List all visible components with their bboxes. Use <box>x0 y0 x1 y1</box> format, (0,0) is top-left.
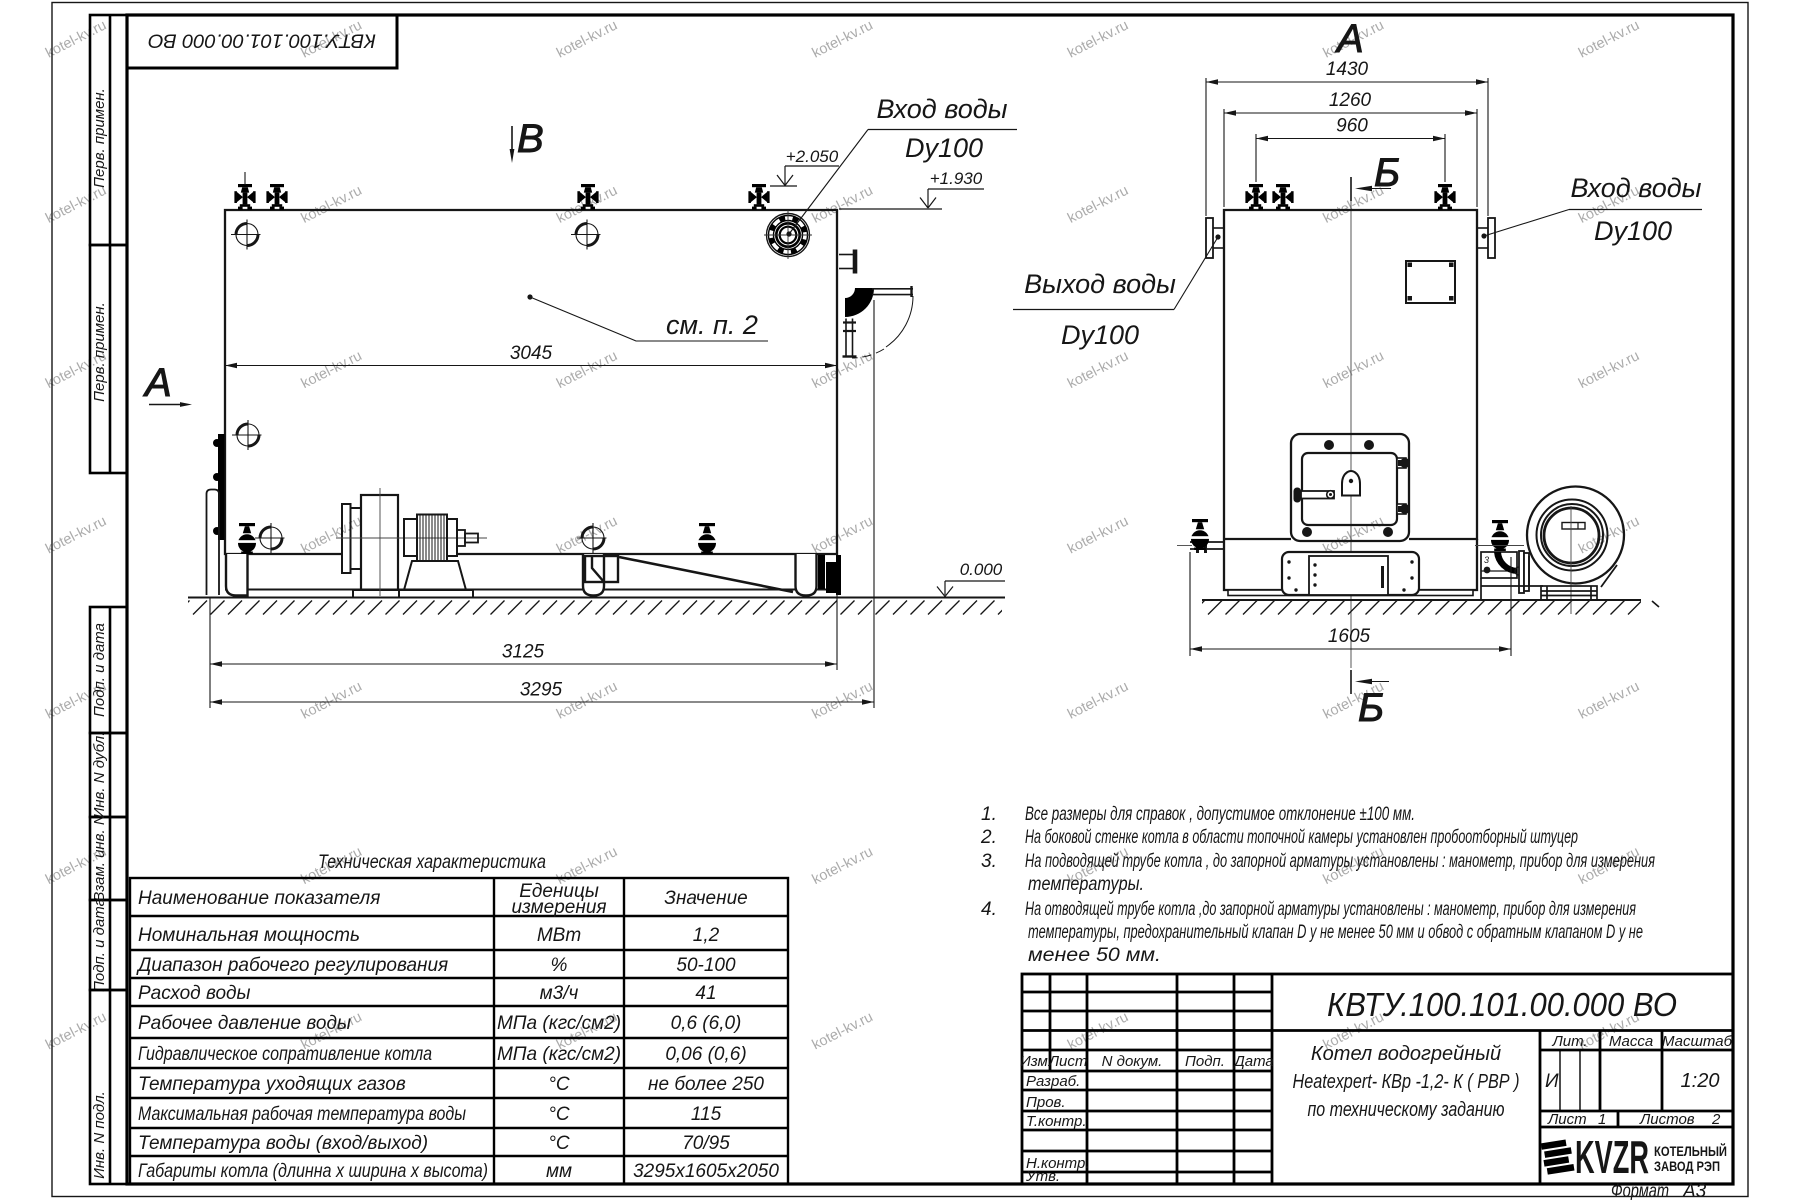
svg-text:На отводящей трубе котла ,до з: На отводящей трубе котла ,до запорной ар… <box>1025 899 1636 920</box>
svg-text:%: % <box>551 955 568 976</box>
svg-text:4.: 4. <box>981 899 997 920</box>
svg-text:1.: 1. <box>981 804 997 825</box>
svg-text:°С: °С <box>548 1074 570 1095</box>
svg-text:3295: 3295 <box>520 680 563 701</box>
svg-text:3: 3 <box>1484 555 1489 565</box>
svg-text:температуры, предохранительны: температуры, предохранительный клапан D … <box>1028 922 1643 943</box>
svg-text:В: В <box>517 117 544 161</box>
svg-text:0,6 (6,0): 0,6 (6,0) <box>671 1013 742 1034</box>
svg-text:Значение: Значение <box>664 888 747 909</box>
svg-text:Инв. N подл.: Инв. N подл. <box>91 1091 108 1179</box>
svg-text:kotel-kv.ru: kotel-kv.ru <box>1576 348 1642 392</box>
svg-text:Лит.: Лит. <box>1551 1033 1587 1050</box>
svg-text:kotel-kv.ru: kotel-kv.ru <box>1065 513 1131 557</box>
svg-text:МПа (кгс/см2): МПа (кгс/см2) <box>497 1044 621 1065</box>
svg-text:МВт: МВт <box>537 925 581 946</box>
svg-text:м3/ч: м3/ч <box>540 983 579 1004</box>
svg-text:960: 960 <box>1336 116 1368 137</box>
svg-text:Перв. примен.: Перв. примен. <box>91 302 108 402</box>
svg-text:Наименование показателя: Наименование показателя <box>138 888 380 909</box>
svg-text:А3: А3 <box>1682 1181 1707 1200</box>
svg-text:kotel-kv.ru: kotel-kv.ru <box>810 844 876 888</box>
svg-text:Формат: Формат <box>1611 1181 1669 1200</box>
svg-text:А: А <box>143 361 172 405</box>
svg-text:kotel-kv.ru: kotel-kv.ru <box>1065 679 1131 723</box>
svg-text:kotel-kv.ru: kotel-kv.ru <box>554 348 620 392</box>
svg-text:3295х1605х2050: 3295х1605х2050 <box>633 1161 779 1182</box>
svg-text:Рабочее давление воды: Рабочее давление воды <box>138 1013 351 1034</box>
svg-text:kotel-kv.ru: kotel-kv.ru <box>299 183 365 227</box>
svg-text:1430: 1430 <box>1326 59 1369 80</box>
svg-text:И: И <box>1545 1071 1559 1092</box>
svg-text:0.000: 0.000 <box>960 560 1003 579</box>
svg-text:kotel-kv.ru: kotel-kv.ru <box>1065 348 1131 392</box>
svg-text:Техническая характеристика: Техническая характеристика <box>318 852 546 873</box>
svg-text:kotel-kv.ru: kotel-kv.ru <box>554 17 620 61</box>
svg-text:менее 50 мм.: менее 50 мм. <box>1028 945 1161 966</box>
svg-text:Изм.: Изм. <box>1020 1053 1052 1070</box>
svg-text:Температура уходящих газов: Температура уходящих газов <box>138 1074 406 1095</box>
svg-text:2.: 2. <box>980 827 997 848</box>
svg-text:Б: Б <box>1358 686 1384 730</box>
svg-text:Лист: Лист <box>1048 1053 1088 1070</box>
svg-text:Инв. N дубл.: Инв. N дубл. <box>91 732 108 819</box>
svg-text:kotel-kv.ru: kotel-kv.ru <box>554 513 620 557</box>
svg-text:Диапазон рабочего регулировани: Диапазон рабочего регулирования <box>136 955 448 976</box>
svg-text:см. п. 2: см. п. 2 <box>666 310 758 340</box>
svg-text:kotel-kv.ru: kotel-kv.ru <box>43 183 109 227</box>
svg-text:kotel-kv.ru: kotel-kv.ru <box>1576 679 1642 723</box>
svg-text:kotel-kv.ru: kotel-kv.ru <box>810 183 876 227</box>
svg-text:Гидравлическое сопративление к: Гидравлическое сопративление котла <box>138 1044 432 1065</box>
svg-text:На боковой стенке котла в обла: На боковой стенке котла в области топочн… <box>1025 827 1578 848</box>
svg-text:kotel-kv.ru: kotel-kv.ru <box>299 348 365 392</box>
svg-text:Все размеры для справок , допу: Все размеры для справок , допустимое отк… <box>1025 804 1415 825</box>
svg-text:Котел водогрейный: Котел водогрейный <box>1311 1043 1501 1065</box>
svg-text:Перв. примен.: Перв. примен. <box>91 88 108 188</box>
svg-text:измерения: измерения <box>511 897 606 918</box>
svg-text:°С: °С <box>548 1133 570 1154</box>
svg-text:°С: °С <box>548 1104 570 1125</box>
svg-text:Масштаб: Масштаб <box>1662 1033 1733 1050</box>
svg-text:Расход воды: Расход воды <box>138 983 251 1004</box>
svg-text:КОТЕЛЬНЫЙ: КОТЕЛЬНЫЙ <box>1654 1142 1727 1159</box>
svg-text:мм: мм <box>546 1161 572 1182</box>
svg-text:kotel-kv.ru: kotel-kv.ru <box>1321 513 1387 557</box>
svg-text:kotel-kv.ru: kotel-kv.ru <box>554 679 620 723</box>
svg-text:50-100: 50-100 <box>676 955 736 976</box>
svg-text:Лист: Лист <box>1547 1111 1587 1128</box>
svg-text:Подп. и дата: Подп. и дата <box>91 623 108 717</box>
svg-text:Дата: Дата <box>1232 1053 1274 1070</box>
svg-text:ЗАВОД РЭП: ЗАВОД РЭП <box>1654 1158 1720 1174</box>
svg-text:kotel-kv.ru: kotel-kv.ru <box>299 679 365 723</box>
svg-text:kotel-kv.ru: kotel-kv.ru <box>810 348 876 392</box>
svg-text:kotel-kv.ru: kotel-kv.ru <box>810 17 876 61</box>
svg-text:1,2: 1,2 <box>693 925 720 946</box>
svg-text:Выход воды: Выход воды <box>1024 269 1176 299</box>
svg-text:kotel-kv.ru: kotel-kv.ru <box>810 513 876 557</box>
svg-text:температуры.: температуры. <box>1028 874 1144 895</box>
svg-text:Вход воды: Вход воды <box>1570 173 1701 203</box>
svg-text:Dy100: Dy100 <box>905 133 983 163</box>
svg-text:Dy100: Dy100 <box>1594 216 1672 246</box>
svg-text:3125: 3125 <box>502 642 545 663</box>
svg-text:Подп. и дата: Подп. и дата <box>91 898 108 992</box>
svg-text:KVZR: KVZR <box>1575 1131 1649 1183</box>
svg-text:kotel-kv.ru: kotel-kv.ru <box>1576 513 1642 557</box>
svg-text:Номинальная мощность: Номинальная мощность <box>138 925 360 946</box>
svg-text:2: 2 <box>1711 1111 1721 1128</box>
svg-text:не более 250: не более 250 <box>648 1074 764 1095</box>
svg-text:Температура воды (вход/выход): Температура воды (вход/выход) <box>138 1133 428 1154</box>
svg-text:1260: 1260 <box>1329 90 1372 111</box>
svg-text:kotel-kv.ru: kotel-kv.ru <box>1321 348 1387 392</box>
svg-text:Листов: Листов <box>1639 1111 1695 1128</box>
svg-text:1:20: 1:20 <box>1681 1070 1720 1092</box>
svg-text:70/95: 70/95 <box>682 1133 730 1154</box>
svg-text:Heatexpert- КВр -1,2- К ( РВР: Heatexpert- КВр -1,2- К ( РВР ) <box>1293 1071 1520 1093</box>
svg-text:kotel-kv.ru: kotel-kv.ru <box>1065 183 1131 227</box>
svg-text:КВТУ.100.101.00.000 ВО: КВТУ.100.101.00.000 ВО <box>148 30 376 51</box>
svg-text:+1.930: +1.930 <box>930 169 983 188</box>
svg-text:Вход воды: Вход воды <box>876 94 1007 124</box>
svg-text:КВТУ.100.101.00.000 ВО: КВТУ.100.101.00.000 ВО <box>1327 986 1677 1023</box>
svg-text:3045: 3045 <box>510 343 553 364</box>
svg-text:Т.контр.: Т.контр. <box>1026 1113 1087 1130</box>
svg-text:kotel-kv.ru: kotel-kv.ru <box>43 1009 109 1053</box>
svg-text:Масса: Масса <box>1609 1033 1653 1050</box>
svg-text:+2.050: +2.050 <box>786 147 839 166</box>
svg-text:На подводящей трубе котла ,: На подводящей трубе котла , до запорной … <box>1025 851 1655 872</box>
svg-text:Подп.: Подп. <box>1185 1053 1225 1070</box>
svg-text:МПа (кгс/см2): МПа (кгс/см2) <box>497 1013 621 1034</box>
svg-text:kotel-kv.ru: kotel-kv.ru <box>43 513 109 557</box>
svg-text:Утв.: Утв. <box>1025 1168 1060 1185</box>
svg-text:Пров.: Пров. <box>1026 1094 1066 1111</box>
svg-text:Габариты котла (длинна х ширин: Габариты котла (длинна х ширина х высота… <box>138 1161 488 1182</box>
svg-text:115: 115 <box>691 1104 722 1125</box>
svg-text:kotel-kv.ru: kotel-kv.ru <box>299 513 365 557</box>
svg-text:kotel-kv.ru: kotel-kv.ru <box>810 1009 876 1053</box>
svg-text:Максимальная рабочая температу: Максимальная рабочая температура воды <box>138 1104 466 1125</box>
svg-text:Dy100: Dy100 <box>1061 320 1139 350</box>
svg-text:0,06 (0,6): 0,06 (0,6) <box>665 1044 746 1065</box>
svg-text:Взам. инв. N: Взам. инв. N <box>91 814 108 902</box>
svg-text:по техническому заданию: по техническому заданию <box>1308 1099 1505 1121</box>
svg-text:А: А <box>1335 17 1364 61</box>
svg-text:kotel-kv.ru: kotel-kv.ru <box>1065 17 1131 61</box>
svg-text:kotel-kv.ru: kotel-kv.ru <box>1576 17 1642 61</box>
svg-text:41: 41 <box>695 983 716 1004</box>
svg-text:1605: 1605 <box>1328 626 1371 647</box>
svg-text:kotel-kv.ru: kotel-kv.ru <box>43 17 109 61</box>
svg-text:1: 1 <box>1598 1111 1606 1128</box>
svg-text:N докум.: N докум. <box>1102 1053 1163 1070</box>
svg-text:Разраб.: Разраб. <box>1026 1073 1080 1090</box>
svg-text:3.: 3. <box>981 851 997 872</box>
